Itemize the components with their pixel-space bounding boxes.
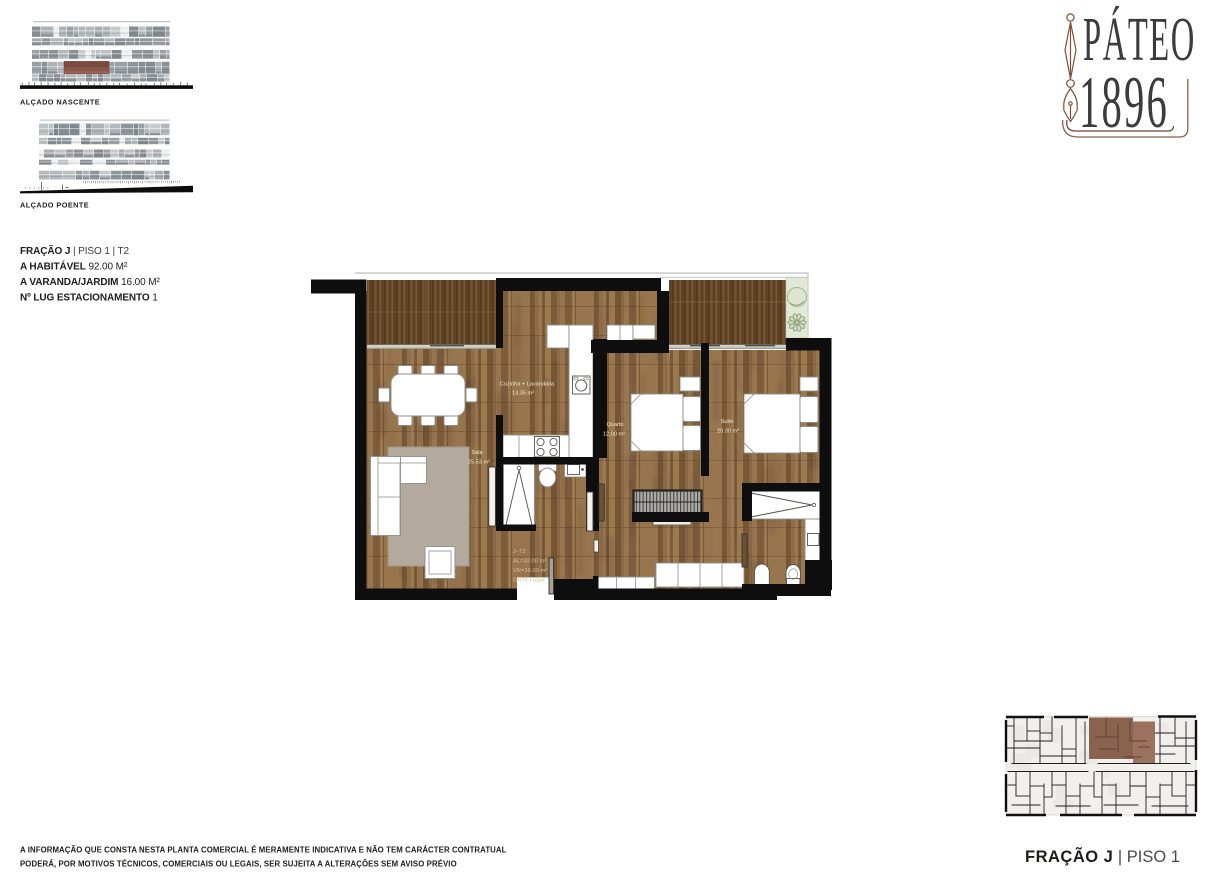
svg-text:20.30 m²: 20.30 m² — [717, 429, 739, 435]
svg-text:Suite: Suite — [721, 419, 734, 425]
svg-text:FRAÇÃO J | PISO 1 | T2: FRAÇÃO J | PISO 1 | T2 — [20, 244, 130, 257]
svg-text:1896: 1896 — [1079, 61, 1169, 143]
svg-text:ALÇADO POENTE: ALÇADO POENTE — [20, 201, 89, 210]
svg-text:12.00 m²: 12.00 m² — [603, 432, 625, 438]
svg-text:AL=92.00 m²: AL=92.00 m² — [513, 559, 546, 565]
svg-text:A INFORMAÇÃO QUE CONSTA NESTA: A INFORMAÇÃO QUE CONSTA NESTA PLANTA COM… — [20, 846, 507, 855]
svg-text:Quarto: Quarto — [606, 422, 623, 428]
svg-text:13.35 m²: 13.35 m² — [512, 391, 534, 397]
svg-text:Cozinha + Lavandaria: Cozinha + Lavandaria — [500, 382, 555, 388]
svg-text:A VARANDA/JARDIM 16.00 M²: A VARANDA/JARDIM 16.00 M² — [20, 277, 161, 288]
svg-text:PODERÁ, POR MOTIVOS TÉCNICOS,: PODERÁ, POR MOTIVOS TÉCNICOS, COMERCIAIS… — [20, 860, 457, 869]
svg-text:J–T2: J–T2 — [513, 549, 526, 555]
svg-text:ALÇADO NASCENTE: ALÇADO NASCENTE — [20, 98, 100, 107]
svg-text:Nº LUG ESTACIONAMENTO 1: Nº LUG ESTACIONAMENTO 1 — [20, 293, 158, 304]
svg-text:A HABITÁVEL 92.00 M²: A HABITÁVEL 92.00 M² — [20, 260, 128, 273]
svg-text:Sala: Sala — [471, 450, 483, 456]
svg-text:VR=16.00 m²: VR=16.00 m² — [513, 568, 547, 574]
svg-text:FRAÇÃO J | PISO 1: FRAÇÃO J | PISO 1 — [1025, 846, 1180, 866]
svg-text:GR=1 Lugar: GR=1 Lugar — [513, 578, 545, 584]
svg-text:25.53 m²: 25.53 m² — [468, 460, 490, 466]
